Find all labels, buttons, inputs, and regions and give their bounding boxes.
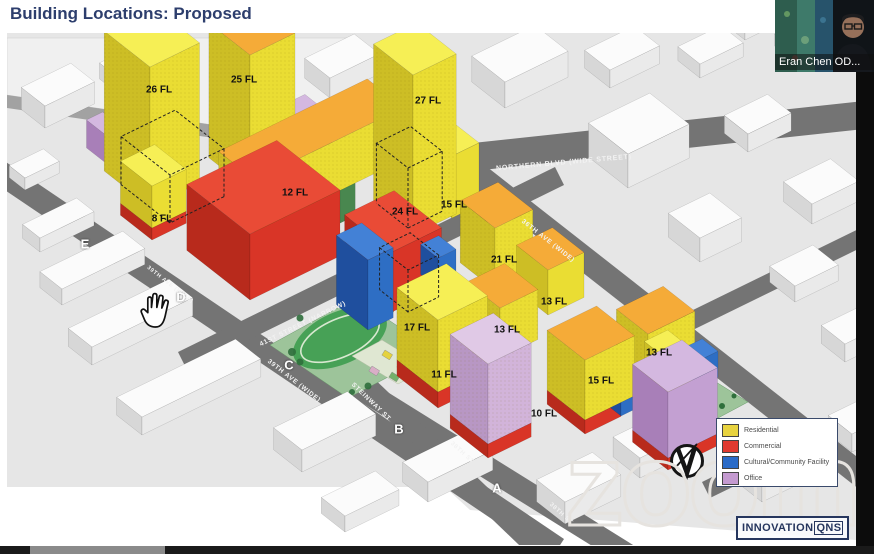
- legend-row: Commercial: [722, 438, 837, 454]
- bottom-bar-segment: [30, 546, 165, 554]
- site-marker: E: [81, 237, 90, 252]
- legend-row: Office: [722, 470, 837, 486]
- residential-color-swatch: [722, 424, 739, 437]
- building-floor-label: 15 FL: [441, 200, 467, 211]
- participant-name: Eran Chen OD...: [775, 54, 874, 70]
- right-letterbox: [856, 0, 874, 554]
- building-floor-label: 25 FL: [231, 75, 257, 86]
- page-title: Building Locations: Proposed: [10, 4, 252, 24]
- logo-text: INNOVATION: [742, 522, 813, 534]
- building-floor-label: 11 FL: [431, 370, 457, 381]
- building-floor-label: 15 FL: [588, 376, 614, 387]
- building-floor-label: 21 FL: [491, 255, 517, 266]
- building-floor-label: 24 FL: [392, 207, 418, 218]
- building-floor-label: 26 FL: [146, 85, 172, 96]
- screen-share-view: Building Locations: Proposed 26 FL 25 FL…: [0, 0, 874, 554]
- building-floor-label: 12 FL: [282, 188, 308, 199]
- building-floor-label: 13 FL: [541, 297, 567, 308]
- bottom-bar: [0, 546, 874, 554]
- legend-row: Cultural/Community Facility: [722, 454, 837, 470]
- legend-label: Office: [744, 475, 762, 482]
- building-floor-label: 17 FL: [404, 323, 430, 334]
- legend-label: Commercial: [744, 443, 781, 450]
- participant-video-tile[interactable]: Eran Chen OD...: [775, 0, 874, 72]
- building-floor-label: 13 FL: [646, 348, 672, 359]
- office-color-swatch: [722, 472, 739, 485]
- map-legend: Residential Commercial Cultural/Communit…: [716, 418, 838, 487]
- cultural-color-swatch: [722, 456, 739, 469]
- building-floor-label: 8 FL: [152, 214, 173, 225]
- commercial-color-swatch: [722, 440, 739, 453]
- legend-row: Residential: [722, 422, 837, 438]
- building-floor-label: 13 FL: [494, 325, 520, 336]
- legend-label: Cultural/Community Facility: [744, 459, 829, 466]
- site-marker: B: [394, 422, 403, 437]
- building-floor-label: 27 FL: [415, 96, 441, 107]
- legend-label: Residential: [744, 427, 779, 434]
- hand-cursor: [138, 289, 172, 331]
- site-marker: A: [492, 481, 501, 496]
- building-floor-label: 10 FL: [531, 409, 557, 420]
- innovationqns-logo: INNOVATION QNS: [736, 516, 849, 540]
- logo-text-qns: QNS: [814, 521, 843, 535]
